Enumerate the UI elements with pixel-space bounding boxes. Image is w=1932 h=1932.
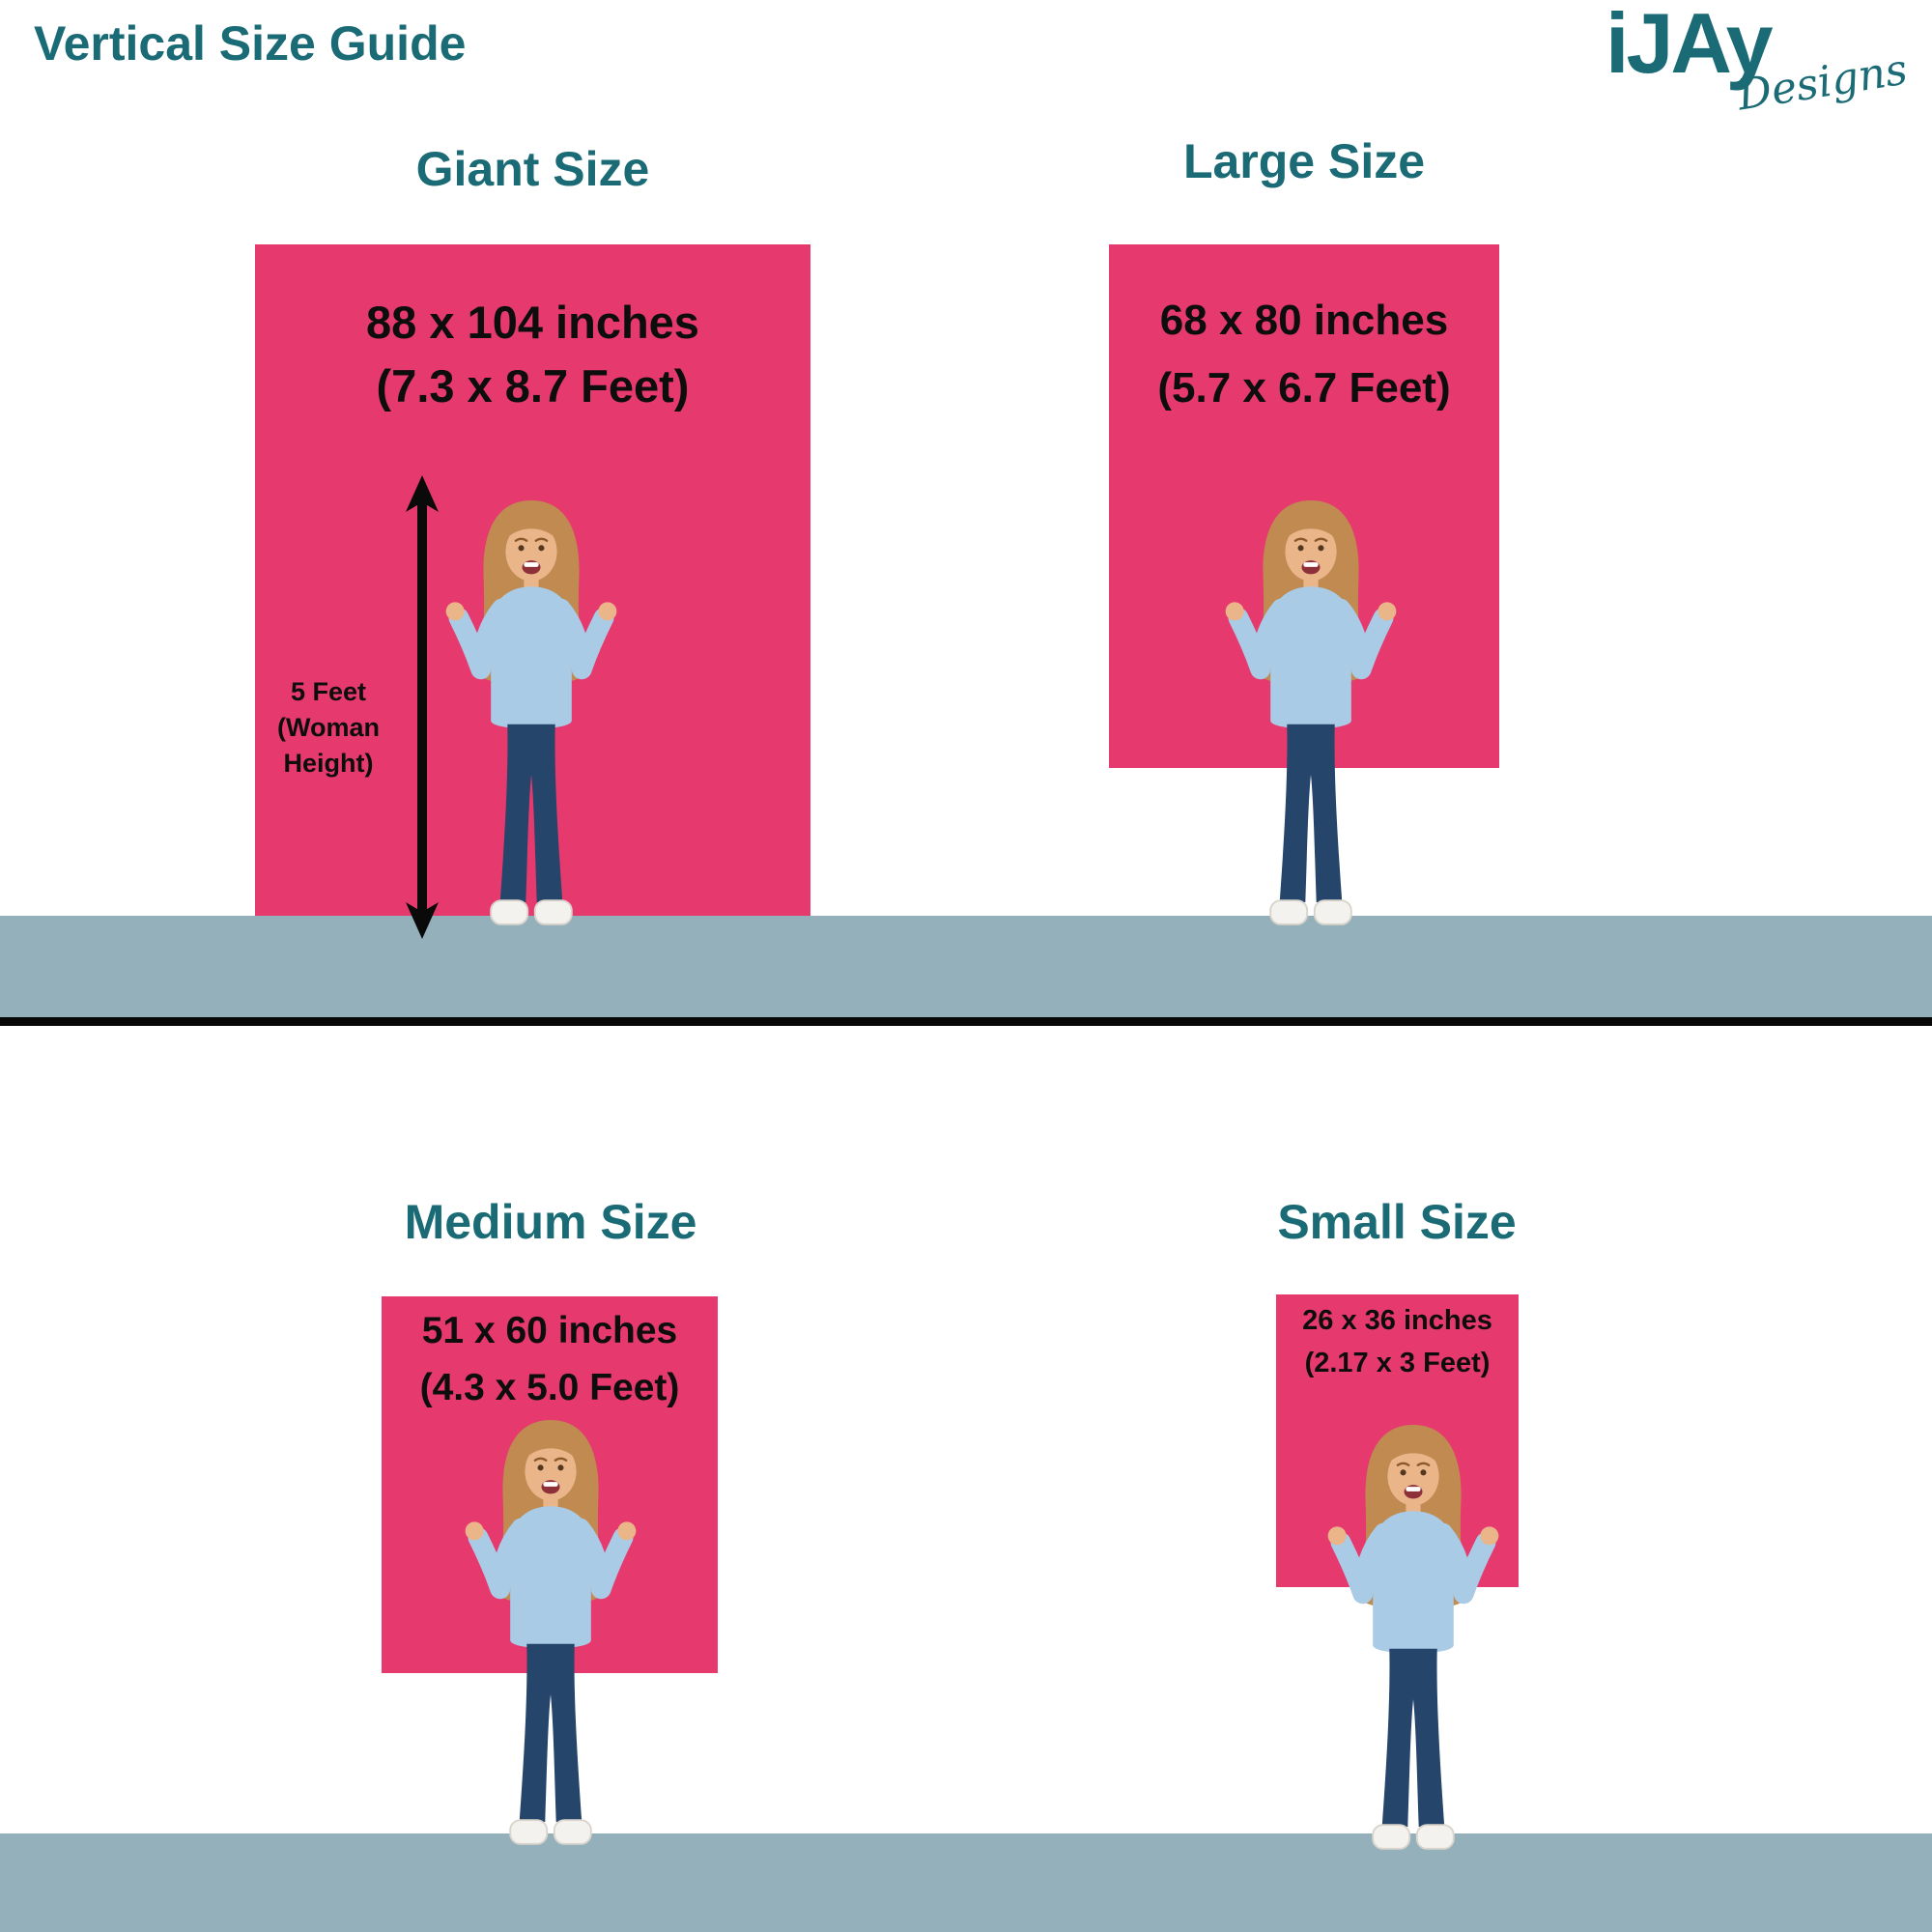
- woman-figure-large: [1219, 486, 1403, 935]
- floor-band-bottom: [0, 1833, 1932, 1932]
- size-title-large: Large Size: [1109, 133, 1499, 189]
- height-arrow-icon: [403, 475, 441, 939]
- woman-height-line3: Height): [249, 746, 408, 781]
- woman-figure-medium: [459, 1406, 642, 1855]
- floor-band-top: [0, 916, 1932, 1017]
- size-feet-large: (5.7 x 6.7 Feet): [1109, 355, 1499, 422]
- woman-height-line1: 5 Feet: [249, 674, 408, 710]
- woman-figure-giant: [440, 486, 623, 935]
- section-divider-line: [0, 1017, 1932, 1026]
- size-feet-small: (2.17 x 3 Feet): [1276, 1342, 1519, 1384]
- size-feet-giant: (7.3 x 8.7 Feet): [255, 355, 810, 418]
- size-guide-infographic: Vertical Size Guide iJAy Designs Giant S…: [0, 0, 1932, 1932]
- size-title-giant: Giant Size: [255, 141, 810, 197]
- size-inches-giant: 88 x 104 inches: [255, 291, 810, 355]
- size-inches-large: 68 x 80 inches: [1109, 287, 1499, 355]
- size-inches-medium: 51 x 60 inches: [382, 1302, 718, 1359]
- woman-figure-small: [1321, 1410, 1505, 1860]
- size-title-small: Small Size: [1252, 1194, 1542, 1250]
- woman-height-label: 5 Feet (Woman Height): [249, 674, 408, 781]
- size-inches-small: 26 x 36 inches: [1276, 1299, 1519, 1342]
- page-title: Vertical Size Guide: [34, 15, 466, 71]
- woman-height-line2: (Woman: [249, 710, 408, 746]
- brand-logo: iJAy Designs: [1594, 0, 1922, 145]
- size-title-medium: Medium Size: [367, 1194, 734, 1250]
